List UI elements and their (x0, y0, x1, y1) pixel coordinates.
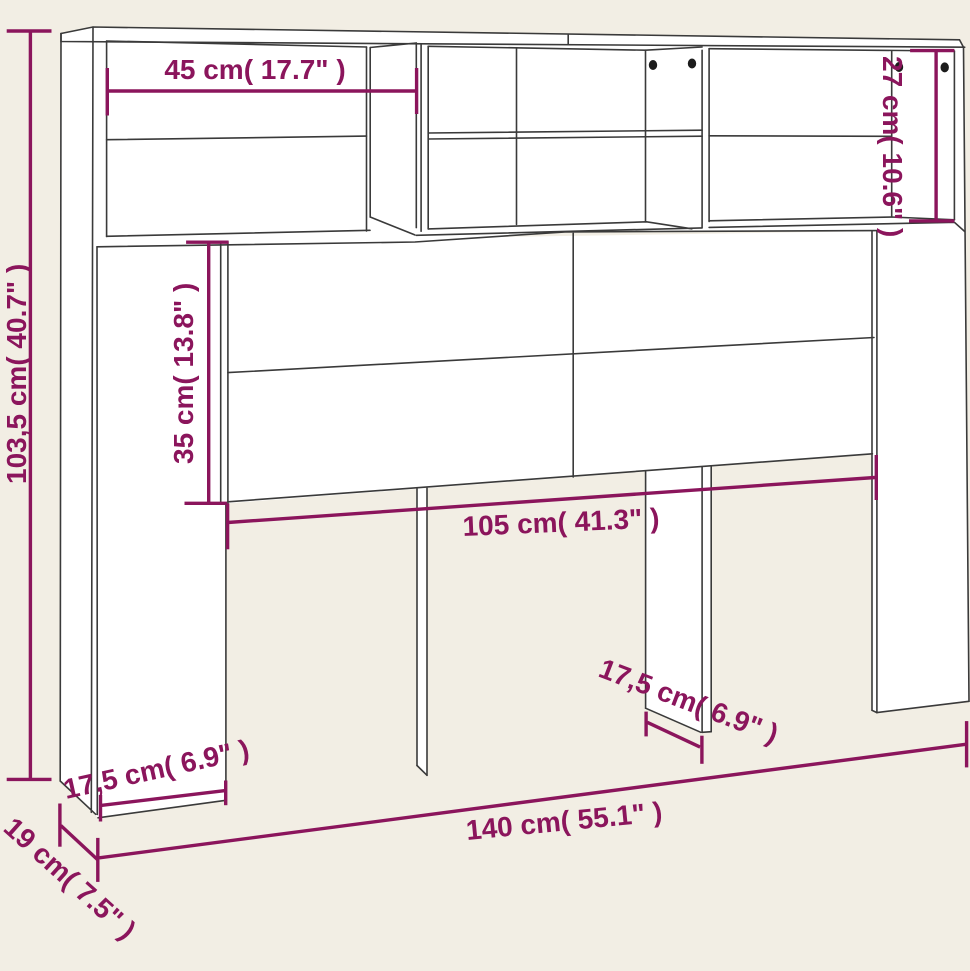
svg-text:45 cm( 17.7" ): 45 cm( 17.7" ) (164, 54, 345, 85)
svg-text:103,5 cm( 40.7" ): 103,5 cm( 40.7" ) (1, 264, 32, 484)
svg-text:27 cm( 10.6" ): 27 cm( 10.6" ) (877, 56, 908, 237)
svg-text:35 cm( 13.8" ): 35 cm( 13.8" ) (168, 283, 199, 464)
